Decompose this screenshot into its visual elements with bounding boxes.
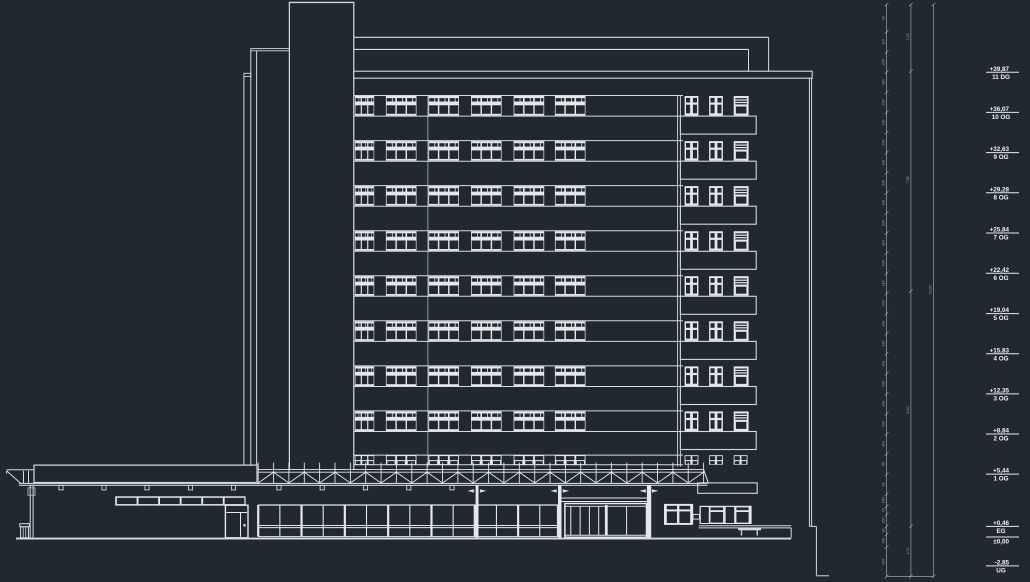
svg-text:110: 110: [882, 200, 886, 206]
svg-text:6 OG: 6 OG: [993, 275, 1008, 282]
svg-text:+32,63: +32,63: [990, 146, 1010, 153]
svg-text:8 OG: 8 OG: [993, 194, 1008, 201]
svg-text:1 OG: 1 OG: [993, 476, 1008, 483]
svg-text:235: 235: [882, 140, 886, 146]
svg-text:235: 235: [882, 559, 886, 565]
svg-text:5 OG: 5 OG: [993, 315, 1008, 322]
svg-text:+8,84: +8,84: [993, 428, 1009, 435]
svg-text:235: 235: [882, 100, 886, 106]
svg-text:3 OG: 3 OG: [993, 396, 1008, 403]
svg-text:30: 30: [882, 16, 886, 20]
svg-text:8,10: 8,10: [906, 407, 910, 414]
svg-text:+12,35: +12,35: [990, 388, 1010, 395]
svg-text:235: 235: [882, 381, 886, 387]
svg-text:49: 49: [882, 508, 886, 512]
svg-text:61: 61: [882, 482, 886, 486]
svg-text:235: 235: [882, 341, 886, 347]
svg-text:235: 235: [882, 220, 886, 226]
svg-text:235: 235: [882, 180, 886, 186]
svg-text:110: 110: [882, 361, 886, 367]
svg-text:UG: UG: [996, 568, 1006, 575]
svg-text:+36,07: +36,07: [990, 106, 1010, 113]
svg-text:+29,28: +29,28: [990, 186, 1010, 193]
svg-text:235: 235: [882, 260, 886, 266]
svg-text:110: 110: [882, 120, 886, 126]
svg-text:2 OG: 2 OG: [993, 436, 1008, 443]
svg-text:110: 110: [882, 401, 886, 407]
svg-text:1,72: 1,72: [906, 548, 910, 555]
svg-text:10 OG: 10 OG: [992, 114, 1011, 121]
svg-text:-2,85: -2,85: [995, 560, 1010, 567]
svg-text:110: 110: [882, 240, 886, 246]
svg-text:+22,42: +22,42: [990, 267, 1010, 274]
svg-text:43,65: 43,65: [929, 286, 933, 295]
svg-text:11 DG: 11 DG: [992, 74, 1010, 81]
svg-text:7 OG: 7 OG: [993, 235, 1008, 242]
svg-text:EG: EG: [996, 528, 1005, 535]
svg-text:9 OG: 9 OG: [993, 154, 1008, 161]
svg-text:235: 235: [882, 421, 886, 427]
svg-text:30: 30: [882, 529, 886, 533]
svg-text:150: 150: [882, 497, 886, 503]
svg-text:+15,83: +15,83: [990, 347, 1010, 354]
svg-text:110: 110: [882, 79, 886, 85]
svg-text:290: 290: [882, 518, 886, 524]
svg-text:110: 110: [882, 441, 886, 447]
svg-text:2,29: 2,29: [906, 34, 910, 41]
svg-text:110: 110: [882, 160, 886, 166]
svg-text:235: 235: [882, 300, 886, 306]
svg-text:+5,44: +5,44: [993, 468, 1009, 475]
svg-text:±0,00: ±0,00: [993, 539, 1009, 546]
svg-text:+25,84: +25,84: [990, 227, 1010, 234]
svg-text:4 OG: 4 OG: [993, 355, 1008, 362]
svg-text:+19,04: +19,04: [990, 307, 1010, 314]
svg-text:95: 95: [882, 462, 886, 466]
svg-text:110: 110: [882, 321, 886, 327]
svg-text:235: 235: [882, 59, 886, 65]
svg-text:+0,46: +0,46: [993, 520, 1009, 527]
svg-text:+39,87: +39,87: [990, 66, 1010, 73]
svg-text:110: 110: [882, 39, 886, 45]
svg-text:7,58: 7,58: [906, 177, 910, 184]
svg-text:110: 110: [882, 538, 886, 544]
svg-text:110: 110: [882, 281, 886, 287]
